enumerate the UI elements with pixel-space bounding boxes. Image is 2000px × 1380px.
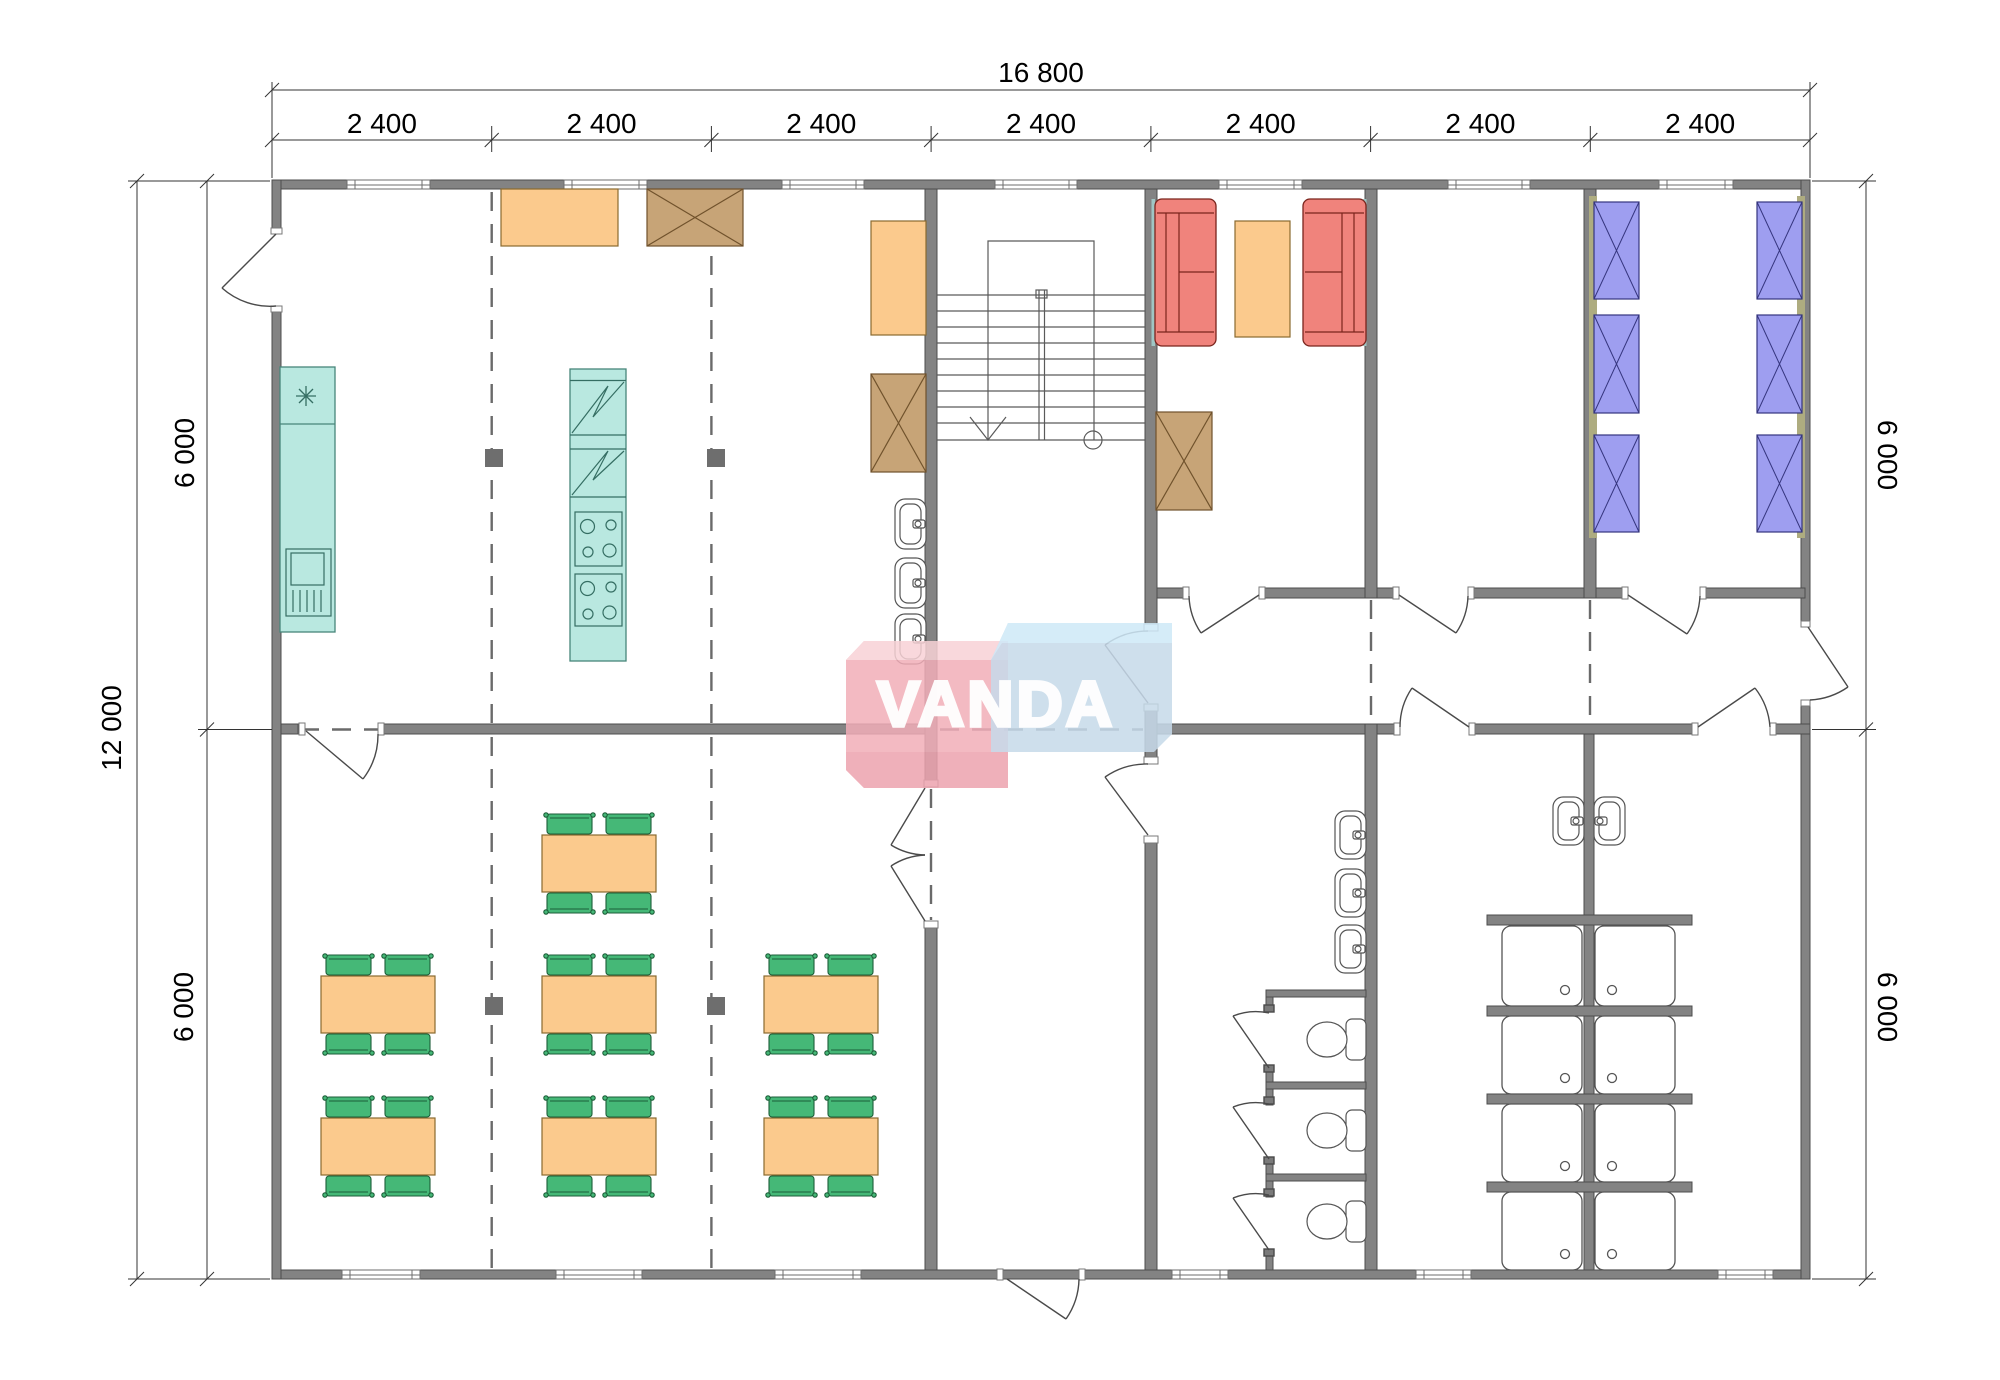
svg-text:6 000: 6 000 (1872, 420, 1903, 490)
svg-text:12 000: 12 000 (96, 685, 127, 771)
svg-text:16 800: 16 800 (998, 57, 1084, 88)
svg-text:2 400: 2 400 (1006, 108, 1076, 139)
svg-text:2 400: 2 400 (786, 108, 856, 139)
svg-text:VANDA: VANDA (877, 668, 1115, 740)
svg-text:2 400: 2 400 (1665, 108, 1735, 139)
svg-text:2 400: 2 400 (347, 108, 417, 139)
svg-text:6 000: 6 000 (1872, 972, 1903, 1042)
svg-text:2 400: 2 400 (1445, 108, 1515, 139)
svg-text:6 000: 6 000 (168, 972, 199, 1042)
svg-text:2 400: 2 400 (567, 108, 637, 139)
svg-text:2 400: 2 400 (1226, 108, 1296, 139)
svg-text:6 000: 6 000 (169, 418, 200, 488)
